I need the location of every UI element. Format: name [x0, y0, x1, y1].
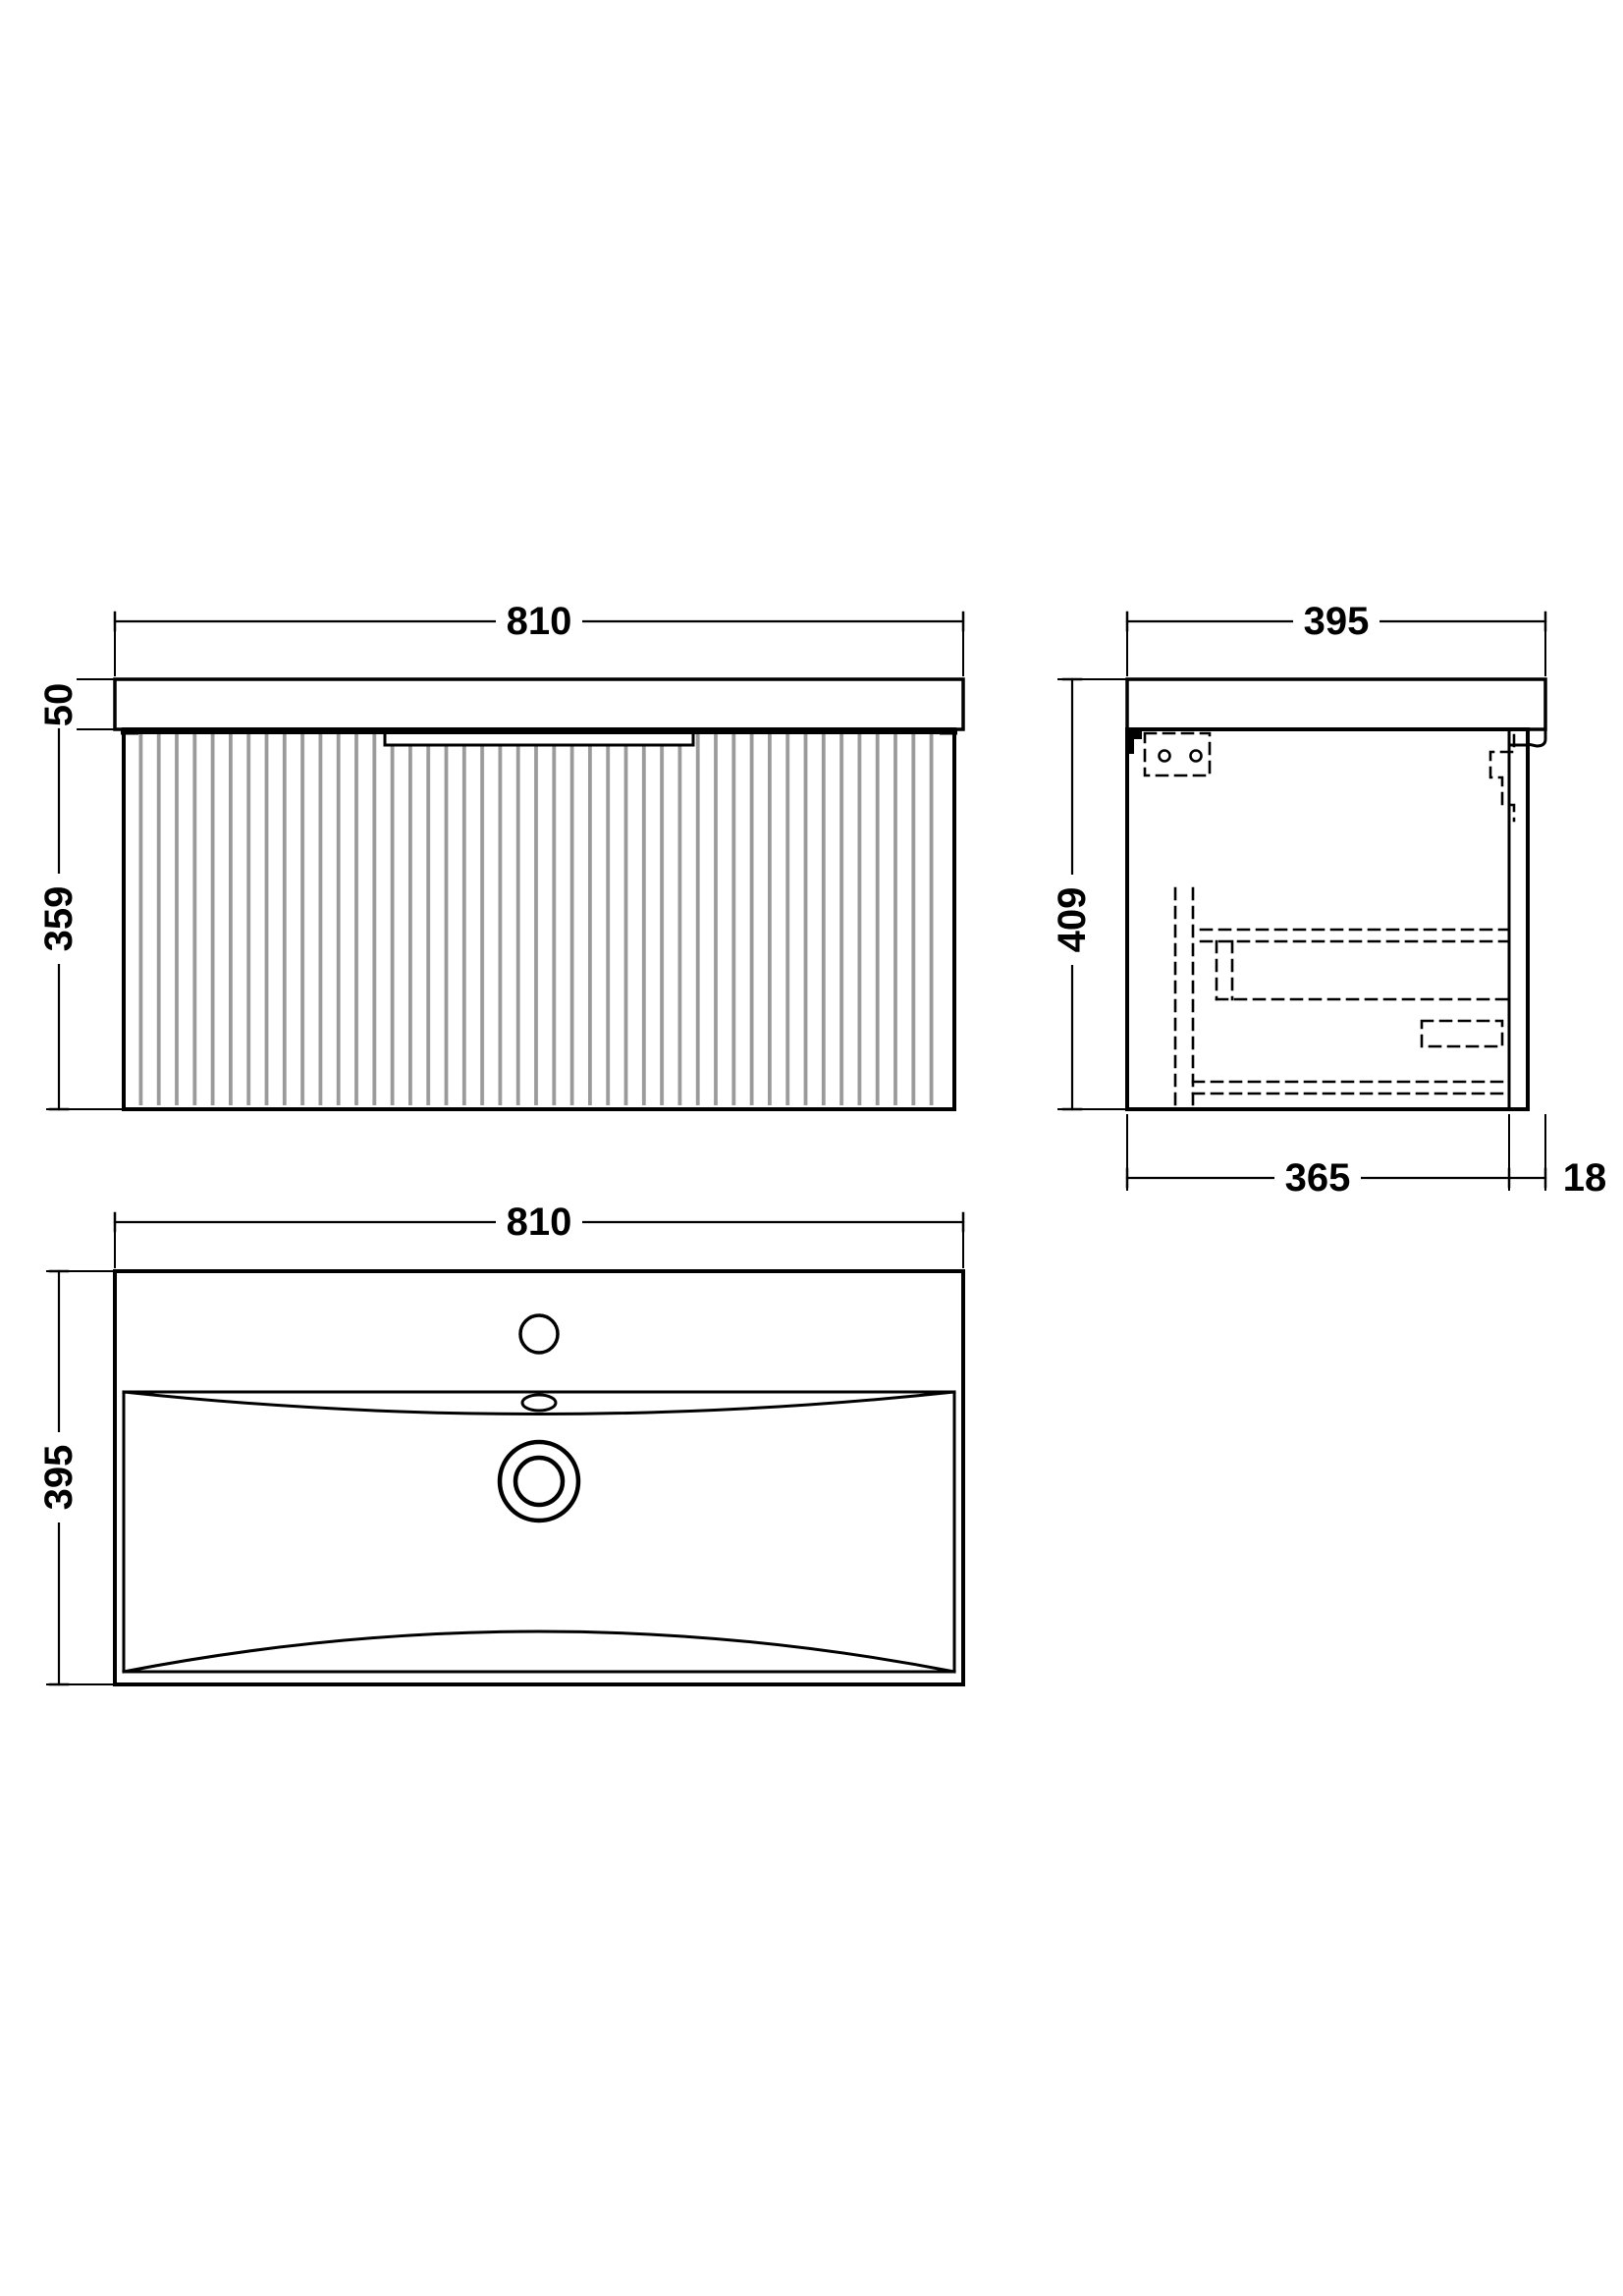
plan-width-label: 810	[507, 1201, 572, 1244]
sheet-background	[0, 0, 1623, 2296]
side-panel-thickness-label: 18	[1563, 1156, 1607, 1200]
side-cabinet	[1127, 729, 1528, 1109]
side-internal-depth-label: 365	[1285, 1156, 1351, 1200]
side-depth-label: 395	[1304, 600, 1370, 643]
side-height-label: 409	[1051, 887, 1094, 953]
front-fluting	[138, 734, 940, 1105]
front-cabinet-height-label: 359	[37, 886, 81, 952]
side-worktop	[1127, 679, 1545, 729]
plan-overflow-slot	[522, 1395, 556, 1411]
vanity-technical-drawing: 810 50 359	[0, 0, 1623, 2296]
plan-drain	[500, 1442, 578, 1521]
plan-depth-label: 395	[37, 1445, 81, 1511]
drawing-sheet: 810 50 359	[0, 0, 1623, 2296]
front-width-label: 810	[507, 600, 572, 643]
front-handle-recess	[385, 734, 693, 745]
plan-view: 810 395	[37, 1201, 963, 1684]
side-view: 395 409	[1051, 600, 1606, 1200]
front-worktop	[115, 679, 963, 729]
front-worktop-height-label: 50	[37, 683, 81, 727]
plan-tap-hole	[520, 1315, 558, 1353]
